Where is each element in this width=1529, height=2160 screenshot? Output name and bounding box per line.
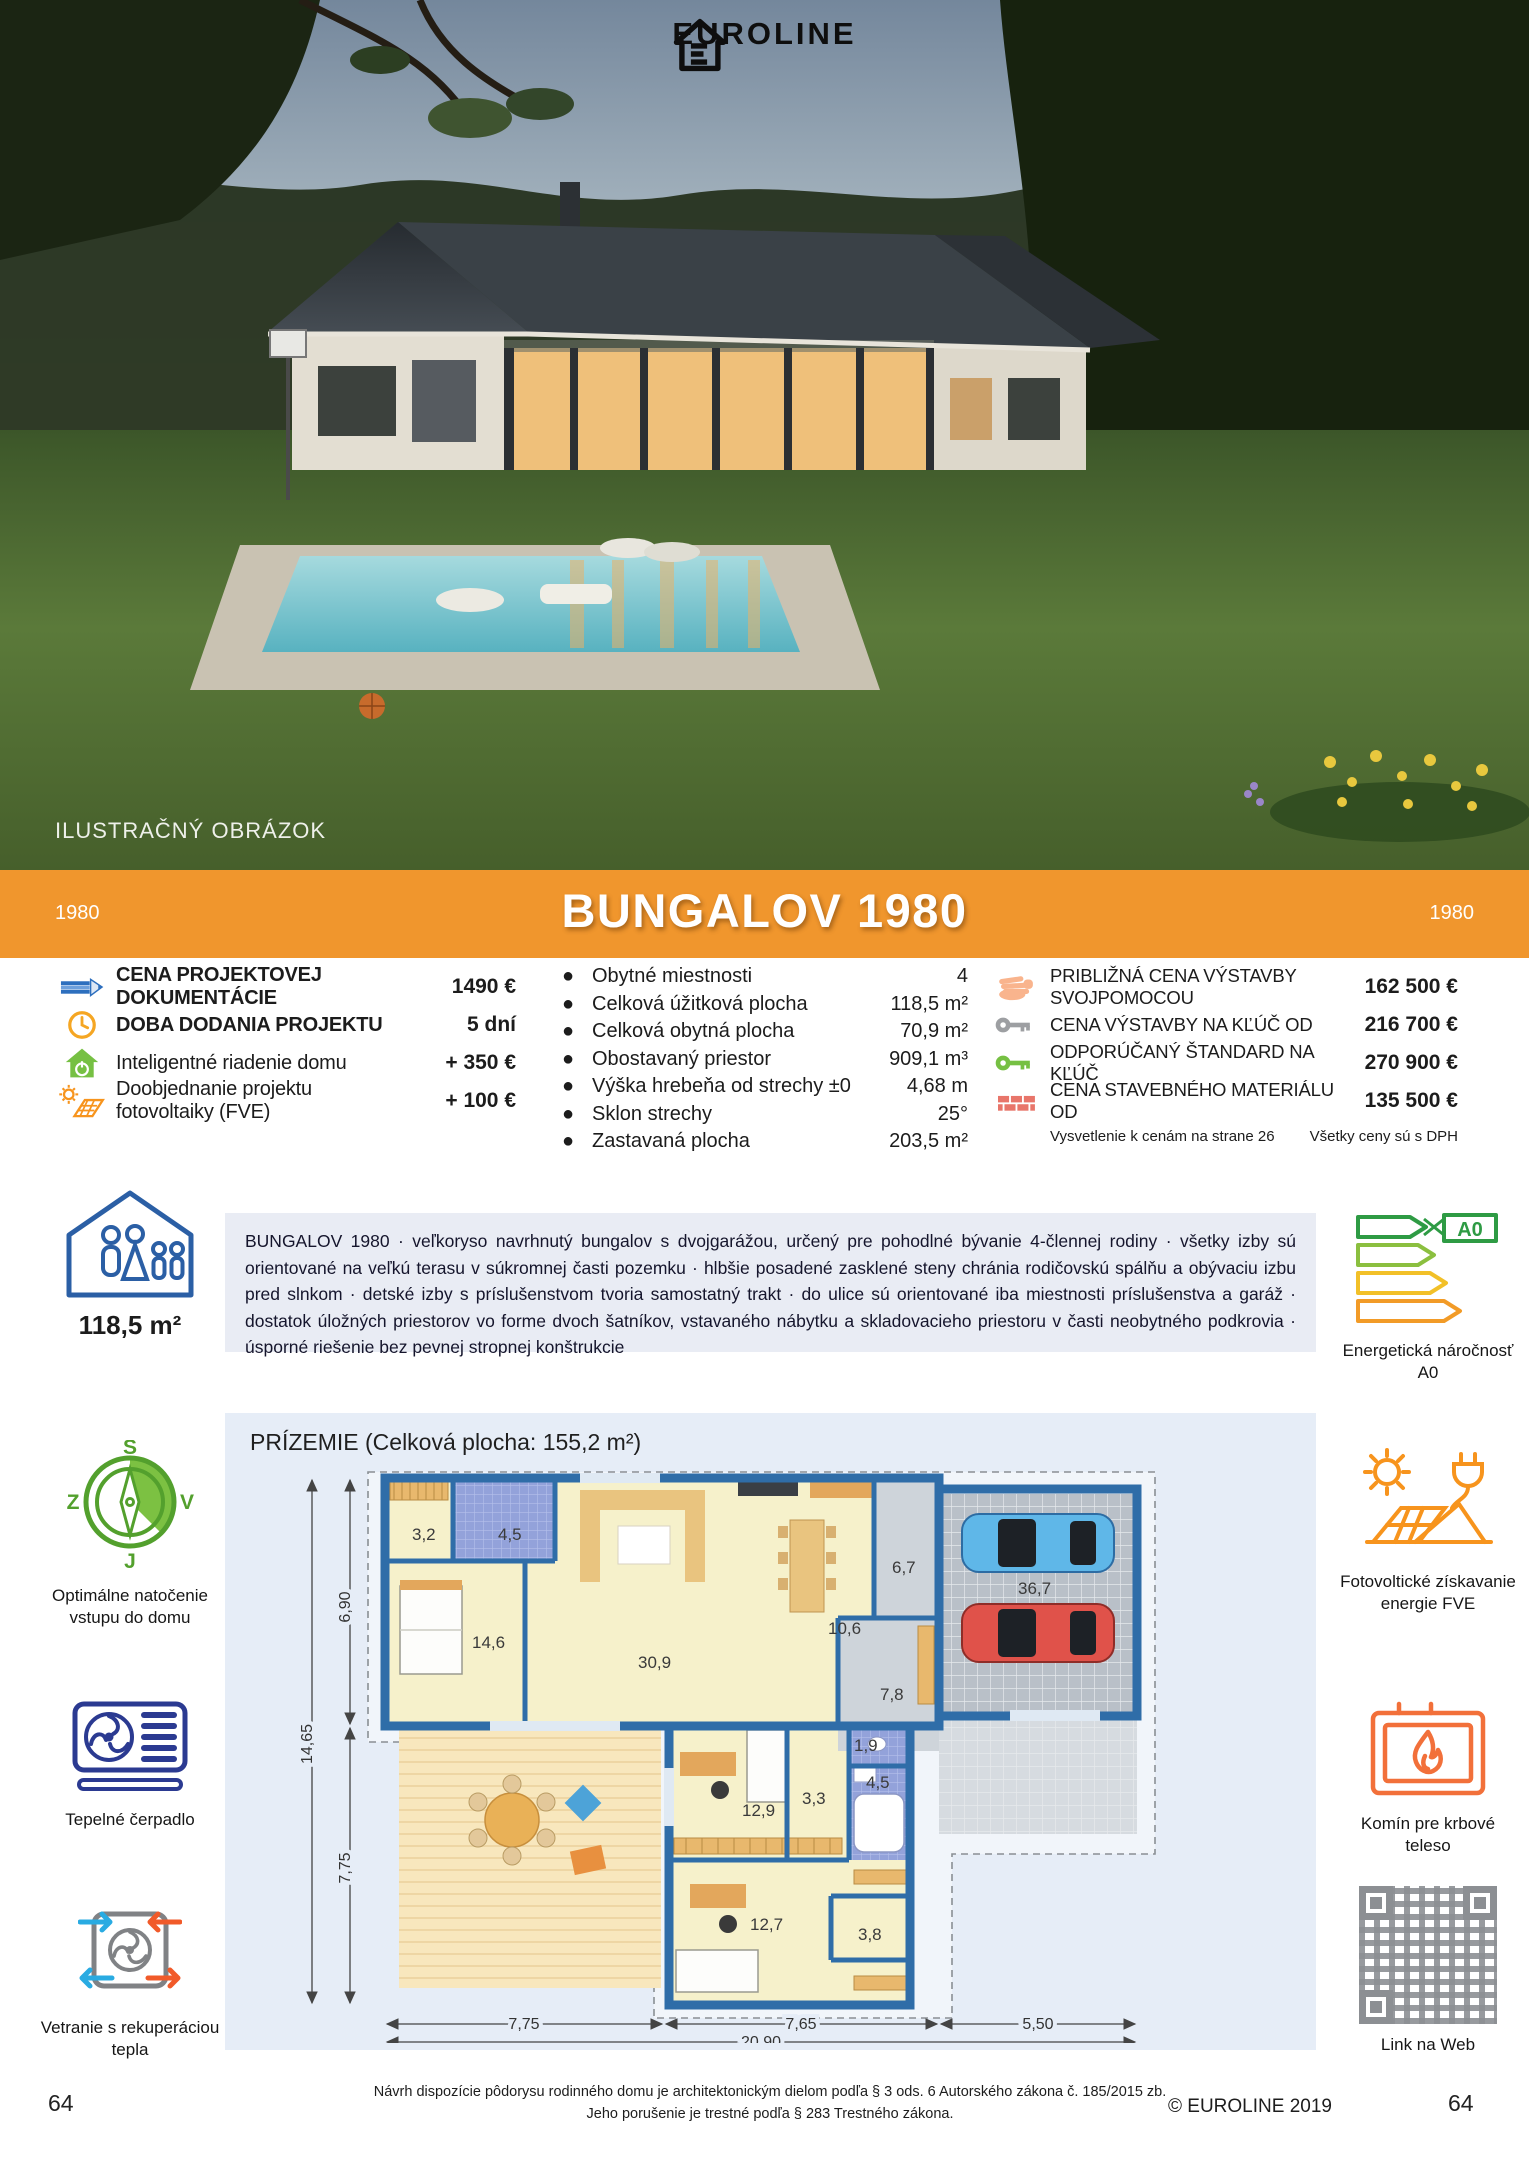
spec-value: 4 (957, 965, 968, 988)
price-row: Doobjednanie projektu fotovoltaiky (FVE)… (58, 1082, 516, 1120)
price-value: 162 500 € (1346, 975, 1458, 999)
spec-value: 70,9 m² (900, 1020, 968, 1043)
spec-label: Sklon strechy (592, 1103, 938, 1126)
spec-label: Obostavaný priestor (592, 1048, 889, 1071)
room-area: 1,9 (854, 1736, 878, 1755)
room-area: 4,5 (866, 1773, 890, 1792)
price-label: CENA STAVEBNÉHO MATERIÁLU OD (1050, 1079, 1346, 1123)
key-green-icon (992, 1051, 1040, 1075)
spec-value: 4,68 m (907, 1075, 968, 1098)
photovoltaic-icon (1357, 1446, 1499, 1556)
compass-label: Optimálne natočenie vstupu do domu (40, 1585, 220, 1630)
spec-row: ●Celková úžitková plocha118,5 m² (556, 991, 968, 1019)
photovoltaic-badge: Fotovoltické získavanie energie FVE (1338, 1446, 1518, 1616)
spec-value: 203,5 m² (889, 1130, 968, 1153)
description-text: BUNGALOV 1980 · veľkoryso navrhnutý bung… (245, 1228, 1296, 1361)
room-area: 30,9 (638, 1653, 671, 1672)
room-area: 4,5 (498, 1525, 522, 1544)
dim-bottom-1: 7,75 (508, 2016, 539, 2033)
price-value: + 350 € (404, 1051, 516, 1075)
qr-finder (1463, 1886, 1497, 1920)
house-family-icon (55, 1183, 205, 1301)
page-number-right: 64 (1448, 2090, 1474, 2117)
spec-row: ●Zastavaná plocha203,5 m² (556, 1128, 968, 1156)
spec-label: Zastavaná plocha (592, 1130, 889, 1153)
house-area-badge: 118,5 m² (40, 1183, 220, 1341)
price-label: CENA PROJEKTOVEJ DOKUMENTÁCIE (116, 964, 404, 1010)
room-area: 10,6 (828, 1619, 861, 1638)
bullet: ● (556, 965, 592, 988)
compass-e: V (180, 1491, 194, 1514)
room-area: 12,9 (742, 1801, 775, 1820)
bullet: ● (556, 1103, 592, 1126)
smart-home-icon (58, 1046, 106, 1080)
floorplan-title: PRÍZEMIE (Celková plocha: 155,2 m²) (250, 1429, 641, 1456)
entry-floor (874, 1478, 939, 1618)
price-value: 270 900 € (1346, 1051, 1458, 1075)
specs-column: ●Obytné miestnosti4 ●Celková úžitková pl… (556, 963, 968, 1156)
usable-area-value: 118,5 m² (40, 1310, 220, 1341)
price-row: Inteligentné riadenie domu + 350 € (58, 1044, 516, 1082)
dim-bottom-2: 7,65 (785, 2016, 816, 2033)
pricing-right-column: PRIBLIŽNÁ CENA VÝSTAVBY SVOJPOMOCOU 162 … (992, 968, 1458, 1145)
spec-label: Celková obytná plocha (592, 1020, 900, 1043)
compass-s: J (124, 1550, 136, 1570)
room-area: 3,3 (802, 1789, 826, 1808)
dim-bottom-3: 5,50 (1022, 2016, 1053, 2033)
spec-label: Výška hrebeňa od strechy ±0 (592, 1075, 907, 1098)
compass-badge: S V J Z Optimálne natočenie vstupu do do… (40, 1440, 220, 1630)
spec-row: ●Výška hrebeňa od strechy ±04,68 m (556, 1073, 968, 1101)
compass-w: Z (67, 1491, 80, 1514)
catalog-page: EUROLINE ILUSTRAČNÝ OBRÁZOK 1980 BUNGALO… (0, 0, 1529, 2160)
compass-icon: S V J Z (65, 1440, 195, 1570)
room-area: 6,7 (892, 1558, 916, 1577)
price-label: Inteligentné riadenie domu (116, 1052, 404, 1075)
legal-line1: Návrh dispozície pôdorysu rodinného domu… (370, 2082, 1170, 2104)
heat-pump-icon (71, 1700, 189, 1794)
price-value: 1490 € (404, 975, 516, 999)
bullet: ● (556, 1048, 592, 1071)
spec-value: 909,1 m³ (889, 1048, 968, 1071)
spec-label: Obytné miestnosti (592, 965, 957, 988)
price-notes: Vysvetlenie k cenám na strane 26 Všetky … (992, 1128, 1458, 1145)
dim-left-bottom: 7,75 (337, 1852, 354, 1883)
pencil-icon (58, 974, 106, 1000)
price-row: CENA STAVEBNÉHO MATERIÁLU OD 135 500 € (992, 1082, 1458, 1120)
clock-icon (58, 1009, 106, 1041)
spec-value: 118,5 m² (891, 993, 968, 1016)
compass-n: S (123, 1440, 137, 1459)
spec-row: ●Obostavaný priestor909,1 m³ (556, 1046, 968, 1074)
room-area: 36,7 (1018, 1579, 1051, 1598)
heatpump-badge: Tepelné čerpadlo (40, 1700, 220, 1831)
house-photo: EUROLINE ILUSTRAČNÝ OBRÁZOK (0, 0, 1529, 870)
page-number-left: 64 (48, 2090, 74, 2117)
qr-code (1359, 1886, 1497, 2024)
energy-label: Energetická náročnosť A0 (1338, 1340, 1518, 1385)
legal-line2: Jeho porušenie je trestné podľa § 283 Tr… (370, 2104, 1170, 2126)
bullet: ● (556, 1130, 592, 1153)
price-value: 5 dní (404, 1013, 516, 1037)
hand-icon (992, 972, 1040, 1002)
room-area: 12,7 (750, 1915, 783, 1934)
dim-left-total: 14,65 (299, 1724, 316, 1764)
ventilation-label: Vetranie s rekuperáciou tepla (40, 2017, 220, 2062)
price-row: CENA PROJEKTOVEJ DOKUMENTÁCIE 1490 € (58, 968, 516, 1006)
price-label: CENA VÝSTAVBY NA KĽÚČ OD (1050, 1014, 1346, 1036)
price-row: DOBA DODANIA PROJEKTU 5 dní (58, 1006, 516, 1044)
copyright: © EUROLINE 2019 (1168, 2096, 1332, 2118)
price-value: 216 700 € (1346, 1013, 1458, 1037)
spec-value: 25° (938, 1103, 968, 1126)
ventilation-badge: Vetranie s rekuperáciou tepla (40, 1898, 220, 2062)
description-block: BUNGALOV 1980 · veľkoryso navrhnutý bung… (225, 1213, 1316, 1352)
energy-label-icon: A0 (1354, 1213, 1502, 1325)
qr-badge: Link na Web (1338, 1886, 1518, 2056)
price-row: PRIBLIŽNÁ CENA VÝSTAVBY SVOJPOMOCOU 162 … (992, 968, 1458, 1006)
photovoltaic-label: Fotovoltické získavanie energie FVE (1338, 1571, 1518, 1616)
price-label: PRIBLIŽNÁ CENA VÝSTAVBY SVOJPOMOCOU (1050, 965, 1346, 1009)
ventilation-icon (78, 1898, 182, 2002)
euroline-logo: EUROLINE (672, 16, 856, 52)
fireplace-icon (1367, 1700, 1489, 1798)
title-banner: 1980 BUNGALOV 1980 1980 (0, 870, 1529, 958)
page-title: BUNGALOV 1980 (0, 883, 1529, 938)
room-area: 3,2 (412, 1525, 436, 1544)
note-explanation: Vysvetlenie k cenám na strane 26 (1050, 1128, 1275, 1145)
bullet: ● (556, 1075, 592, 1098)
pricing-left-column: CENA PROJEKTOVEJ DOKUMENTÁCIE 1490 € DOB… (58, 968, 516, 1120)
dim-bottom-total: 20,90 (741, 2034, 781, 2043)
room-area: 3,8 (858, 1925, 882, 1944)
price-label: Doobjednanie projektu fotovoltaiky (FVE) (116, 1078, 404, 1124)
solar-order-icon (58, 1083, 106, 1119)
heatpump-label: Tepelné čerpadlo (40, 1809, 220, 1831)
legal-text: Návrh dispozície pôdorysu rodinného domu… (370, 2082, 1170, 2126)
bullet: ● (556, 993, 592, 1016)
bricks-icon (992, 1089, 1040, 1113)
qr-finder (1359, 1886, 1393, 1920)
price-value: 135 500 € (1346, 1089, 1458, 1113)
floorplan-drawing: 3,2 4,5 14,6 30,9 10,6 6,7 36,7 7,8 1,9 … (250, 1468, 1250, 2043)
spec-label: Celková úžitková plocha (592, 993, 891, 1016)
price-row: CENA VÝSTAVBY NA KĽÚČ OD 216 700 € (992, 1006, 1458, 1044)
qr-label: Link na Web (1338, 2034, 1518, 2056)
spec-row: ●Celková obytná plocha70,9 m² (556, 1018, 968, 1046)
room-area: 14,6 (472, 1633, 505, 1652)
price-value: + 100 € (404, 1089, 516, 1113)
qr-finder (1359, 1990, 1393, 2024)
fireplace-label: Komín pre krbové teleso (1348, 1813, 1508, 1858)
energy-class-badge: A0 (1457, 1219, 1483, 1241)
note-vat: Všetky ceny sú s DPH (1310, 1128, 1458, 1145)
dim-left-top: 6,90 (337, 1591, 354, 1622)
photo-caption: ILUSTRAČNÝ OBRÁZOK (55, 818, 326, 844)
energy-badge: A0 Energetická náročnosť A0 (1338, 1213, 1518, 1385)
fireplace-badge: Komín pre krbové teleso (1348, 1700, 1508, 1858)
bullet: ● (556, 1020, 592, 1043)
model-code-right: 1980 (1430, 902, 1475, 925)
key-gray-icon (992, 1013, 1040, 1037)
spec-row: ●Obytné miestnosti4 (556, 963, 968, 991)
room-area: 7,8 (880, 1685, 904, 1704)
price-row: ODPORÚČANÝ ŠTANDARD NA KĽÚČ 270 900 € (992, 1044, 1458, 1082)
euroline-house-icon (672, 16, 726, 74)
price-label: DOBA DODANIA PROJEKTU (116, 1014, 404, 1037)
house-photo-scene (0, 0, 1529, 870)
spec-row: ●Sklon strechy25° (556, 1101, 968, 1129)
